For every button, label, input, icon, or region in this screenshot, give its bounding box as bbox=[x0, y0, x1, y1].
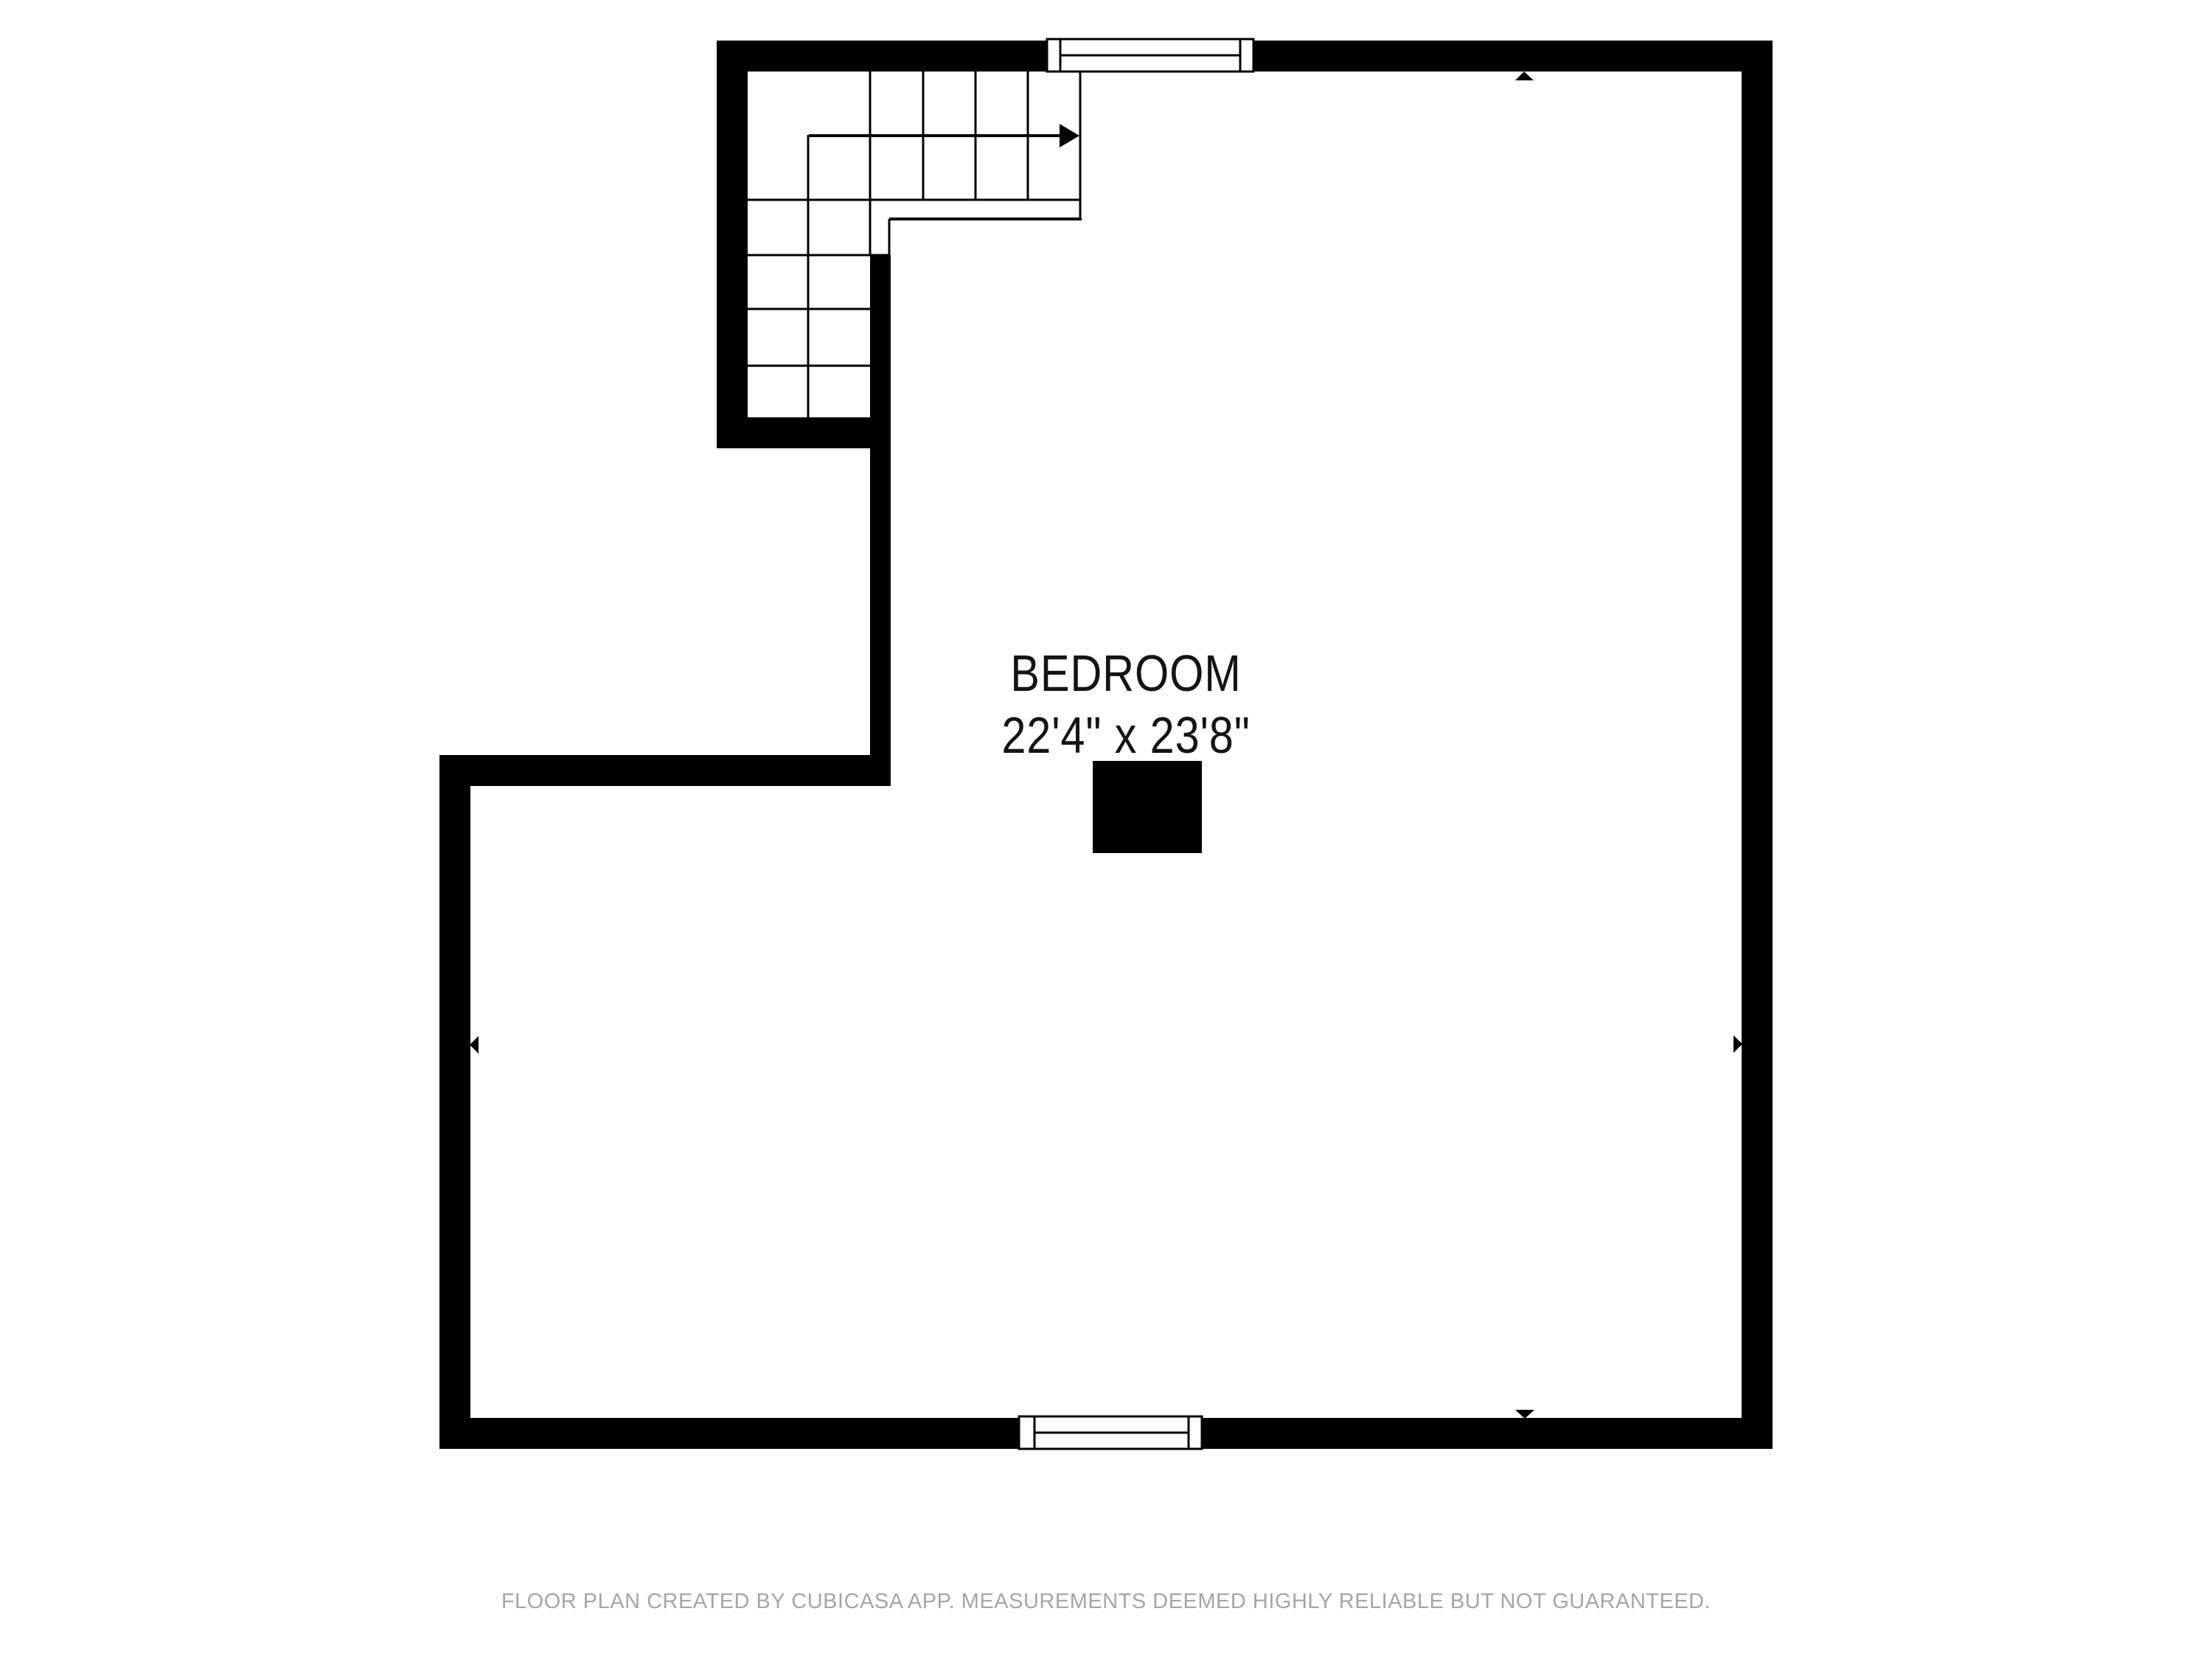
stair-enclosure-bottom-wall bbox=[717, 417, 891, 448]
room-label-block: BEDROOM 22'4" x 23'8" bbox=[757, 647, 1495, 761]
column-block bbox=[1093, 761, 1202, 853]
stair-arrow-head-icon bbox=[1060, 124, 1079, 147]
wall-up-marker-icon bbox=[1515, 72, 1534, 80]
floor-plan-drawing bbox=[0, 0, 2212, 1659]
floor-plan-page: BEDROOM 22'4" x 23'8" FLOOR PLAN CREATED… bbox=[0, 0, 2212, 1659]
wall-right-marker-icon bbox=[1733, 1035, 1742, 1053]
disclaimer-text: FLOOR PLAN CREATED BY CUBICASA APP. MEAS… bbox=[0, 1590, 2212, 1614]
stair-enclosure-left-wall bbox=[717, 41, 748, 448]
wall-left-marker-icon bbox=[470, 1036, 479, 1054]
left-lower-wall bbox=[439, 755, 470, 1449]
wall-down-marker-icon bbox=[1515, 1410, 1534, 1419]
room-dimensions-label: 22'4" x 23'8" bbox=[813, 709, 1439, 761]
room-name-label: BEDROOM bbox=[813, 647, 1439, 699]
right-wall bbox=[1742, 41, 1773, 1449]
